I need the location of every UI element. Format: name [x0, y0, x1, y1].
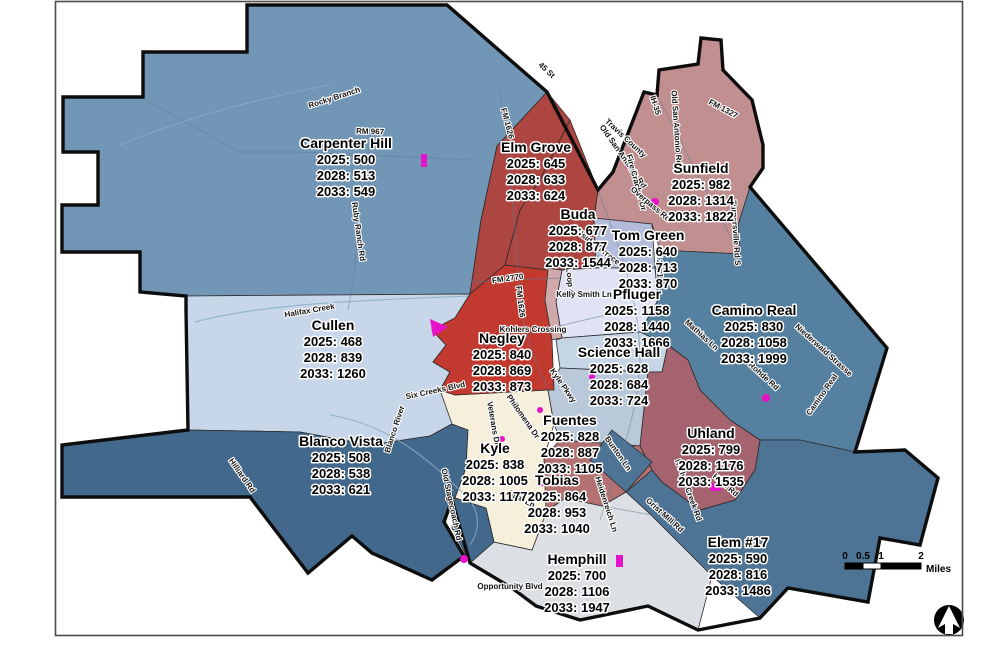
svg-text:2033: 873: 2033: 873 — [473, 379, 532, 394]
scale-bar-segment — [845, 563, 863, 569]
svg-text:2025: 645: 2025: 645 — [507, 156, 566, 171]
svg-text:2028: 877: 2028: 877 — [549, 239, 608, 254]
svg-text:Blanco Vista: Blanco Vista — [299, 433, 383, 449]
scale-tick-label: 0 — [842, 551, 848, 562]
scale-tick-label: 0.5 — [856, 551, 870, 562]
district-map-page: Rocky Branch RM 967 Ruby Ranch Rd FM 162… — [0, 0, 1000, 666]
svg-text:2025: 508: 2025: 508 — [312, 450, 371, 465]
svg-text:2033: 1544: 2033: 1544 — [545, 255, 612, 270]
scale-tick-label: 1 — [878, 551, 884, 562]
svg-text:2025: 799: 2025: 799 — [682, 442, 741, 457]
road-label: 45 St — [537, 60, 557, 80]
svg-text:2025: 982: 2025: 982 — [672, 177, 731, 192]
road-label: Kelly Smith Ln — [556, 290, 612, 299]
svg-text:Elm Grove: Elm Grove — [501, 139, 571, 155]
svg-text:2028: 538: 2028: 538 — [312, 466, 371, 481]
svg-text:Kyle: Kyle — [480, 440, 510, 456]
scale-bar-segment — [863, 563, 881, 569]
svg-text:2028: 869: 2028: 869 — [473, 363, 532, 378]
svg-text:2033: 724: 2033: 724 — [590, 393, 649, 408]
svg-text:2033: 624: 2033: 624 — [507, 188, 566, 203]
svg-text:2028: 1058: 2028: 1058 — [721, 335, 787, 350]
svg-text:Carpenter Hill: Carpenter Hill — [300, 135, 392, 151]
svg-text:2033: 1177: 2033: 1177 — [462, 489, 527, 504]
svg-text:Pfluger: Pfluger — [613, 286, 662, 302]
svg-text:2033: 1260: 2033: 1260 — [300, 366, 366, 381]
svg-text:2025: 1158: 2025: 1158 — [604, 303, 669, 318]
svg-text:Tobias: Tobias — [535, 472, 579, 488]
north-arrow-icon — [934, 605, 964, 635]
svg-text:Tom Green: Tom Green — [612, 227, 685, 243]
svg-text:2025: 840: 2025: 840 — [473, 347, 532, 362]
svg-text:2033: 1822: 2033: 1822 — [668, 209, 734, 224]
svg-text:2025: 700: 2025: 700 — [548, 568, 607, 583]
svg-text:2028: 1005: 2028: 1005 — [462, 473, 528, 488]
svg-text:2025: 830: 2025: 830 — [725, 319, 784, 334]
svg-text:2028: 953: 2028: 953 — [528, 505, 587, 520]
zone-blanco-vista — [62, 424, 468, 580]
svg-text:2033: 549: 2033: 549 — [317, 184, 376, 199]
scale-unit-label: Miles — [926, 564, 951, 575]
svg-text:2028: 713: 2028: 713 — [619, 260, 678, 275]
svg-text:2025: 640: 2025: 640 — [619, 244, 678, 259]
district-map: Rocky Branch RM 967 Ruby Ranch Rd FM 162… — [0, 0, 1000, 666]
svg-text:2033: 1947: 2033: 1947 — [544, 600, 610, 615]
svg-text:2028: 887: 2028: 887 — [541, 445, 600, 460]
svg-text:2033: 1040: 2033: 1040 — [524, 521, 590, 536]
svg-text:2033: 1486: 2033: 1486 — [705, 583, 771, 598]
svg-text:2025: 500: 2025: 500 — [317, 152, 376, 167]
svg-text:2033: 1535: 2033: 1535 — [678, 474, 744, 489]
scale-tick-label: 2 — [918, 551, 924, 562]
svg-text:Buda: Buda — [561, 206, 596, 222]
svg-text:2028: 1176: 2028: 1176 — [678, 458, 743, 473]
svg-text:2028: 633: 2028: 633 — [507, 172, 566, 187]
svg-text:2028: 1106: 2028: 1106 — [544, 584, 609, 599]
school-site-marker — [421, 154, 427, 167]
svg-text:2025: 590: 2025: 590 — [709, 551, 768, 566]
svg-text:Sunfield: Sunfield — [673, 160, 728, 176]
svg-text:Uhland: Uhland — [687, 425, 734, 441]
svg-text:Cullen: Cullen — [312, 317, 355, 333]
svg-text:Camino Real: Camino Real — [712, 302, 797, 318]
svg-text:2028: 1314: 2028: 1314 — [668, 193, 735, 208]
svg-text:2025: 864: 2025: 864 — [528, 489, 587, 504]
svg-text:2025: 828: 2025: 828 — [541, 429, 600, 444]
svg-text:Fuentes: Fuentes — [543, 412, 597, 428]
svg-text:2025: 468: 2025: 468 — [304, 334, 363, 349]
svg-text:2028: 839: 2028: 839 — [304, 350, 363, 365]
svg-text:2028: 816: 2028: 816 — [709, 567, 768, 582]
svg-text:2033: 621: 2033: 621 — [312, 482, 371, 497]
scale-bar-segment — [881, 563, 921, 569]
svg-text:2025: 838: 2025: 838 — [466, 457, 525, 472]
svg-text:2028: 1440: 2028: 1440 — [604, 319, 670, 334]
svg-text:Elem #17: Elem #17 — [708, 534, 769, 550]
school-site-marker — [762, 394, 770, 402]
school-site-marker — [537, 407, 543, 413]
school-site-marker — [616, 555, 623, 567]
svg-text:Science Hall: Science Hall — [578, 344, 661, 360]
svg-text:2033: 1999: 2033: 1999 — [721, 351, 787, 366]
zone-polygons — [62, 5, 938, 630]
svg-text:Negley: Negley — [479, 330, 525, 346]
svg-text:2025: 628: 2025: 628 — [590, 361, 649, 376]
svg-text:2028: 684: 2028: 684 — [590, 377, 649, 392]
svg-text:2025: 677: 2025: 677 — [549, 223, 608, 238]
svg-text:2028: 513: 2028: 513 — [317, 168, 376, 183]
school-site-marker — [460, 555, 468, 563]
road-label: Opportunity Blvd — [477, 582, 542, 591]
svg-text:Hemphill: Hemphill — [547, 551, 606, 567]
